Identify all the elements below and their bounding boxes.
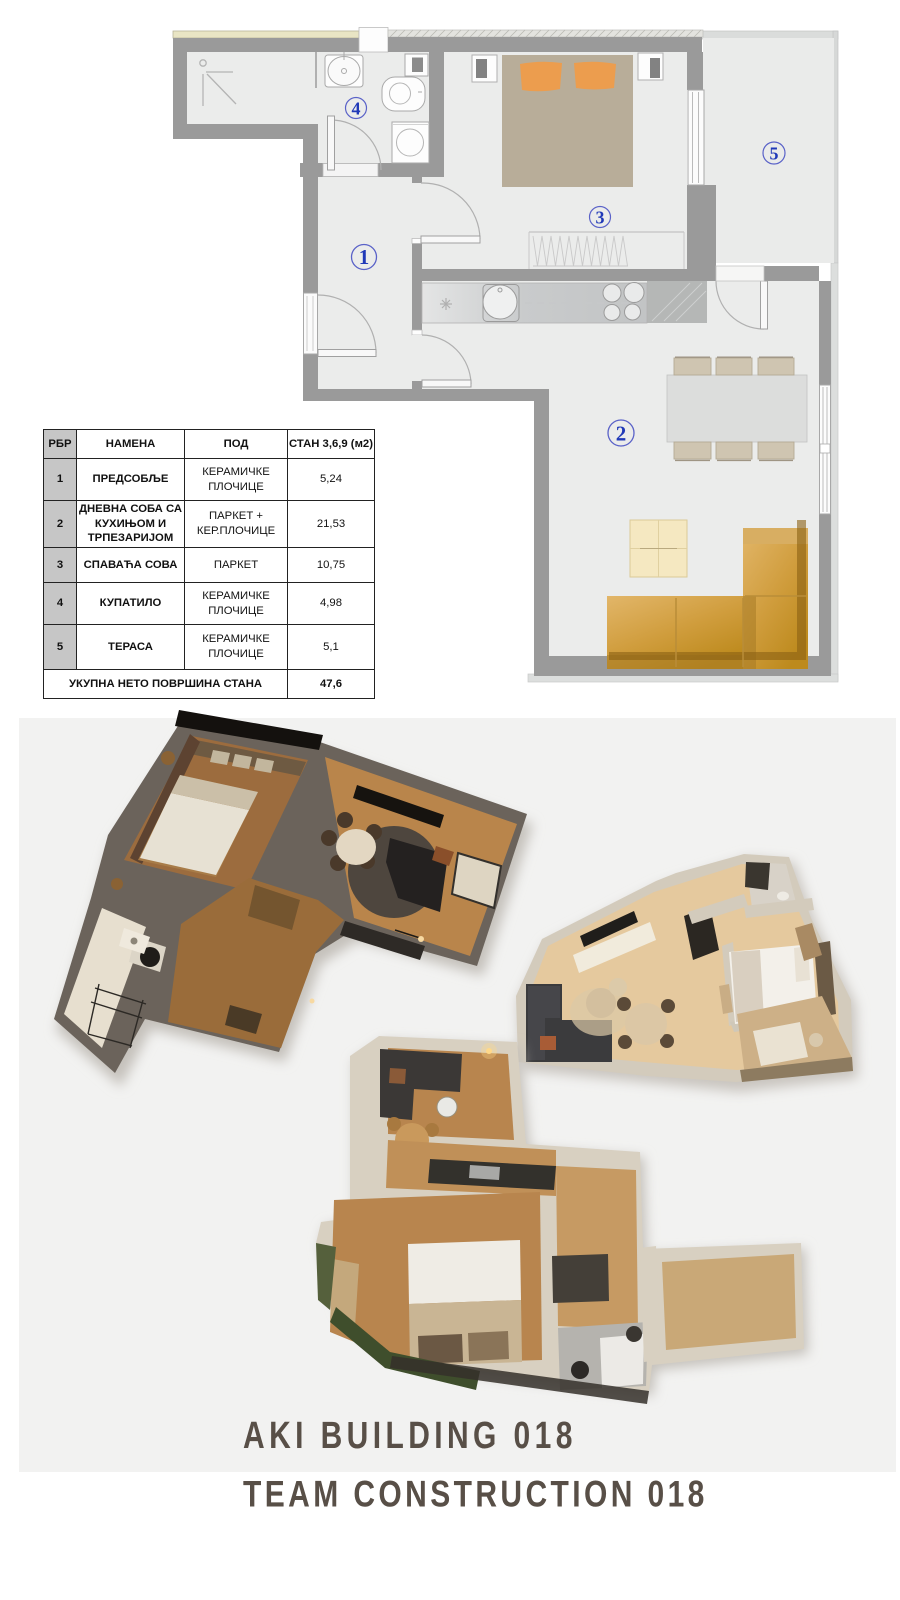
svg-text:3: 3 xyxy=(596,208,605,228)
svg-text:2: 2 xyxy=(616,422,627,446)
svg-text:5: 5 xyxy=(770,144,779,164)
svg-text:1: 1 xyxy=(359,245,370,269)
svg-text:4: 4 xyxy=(352,99,361,119)
